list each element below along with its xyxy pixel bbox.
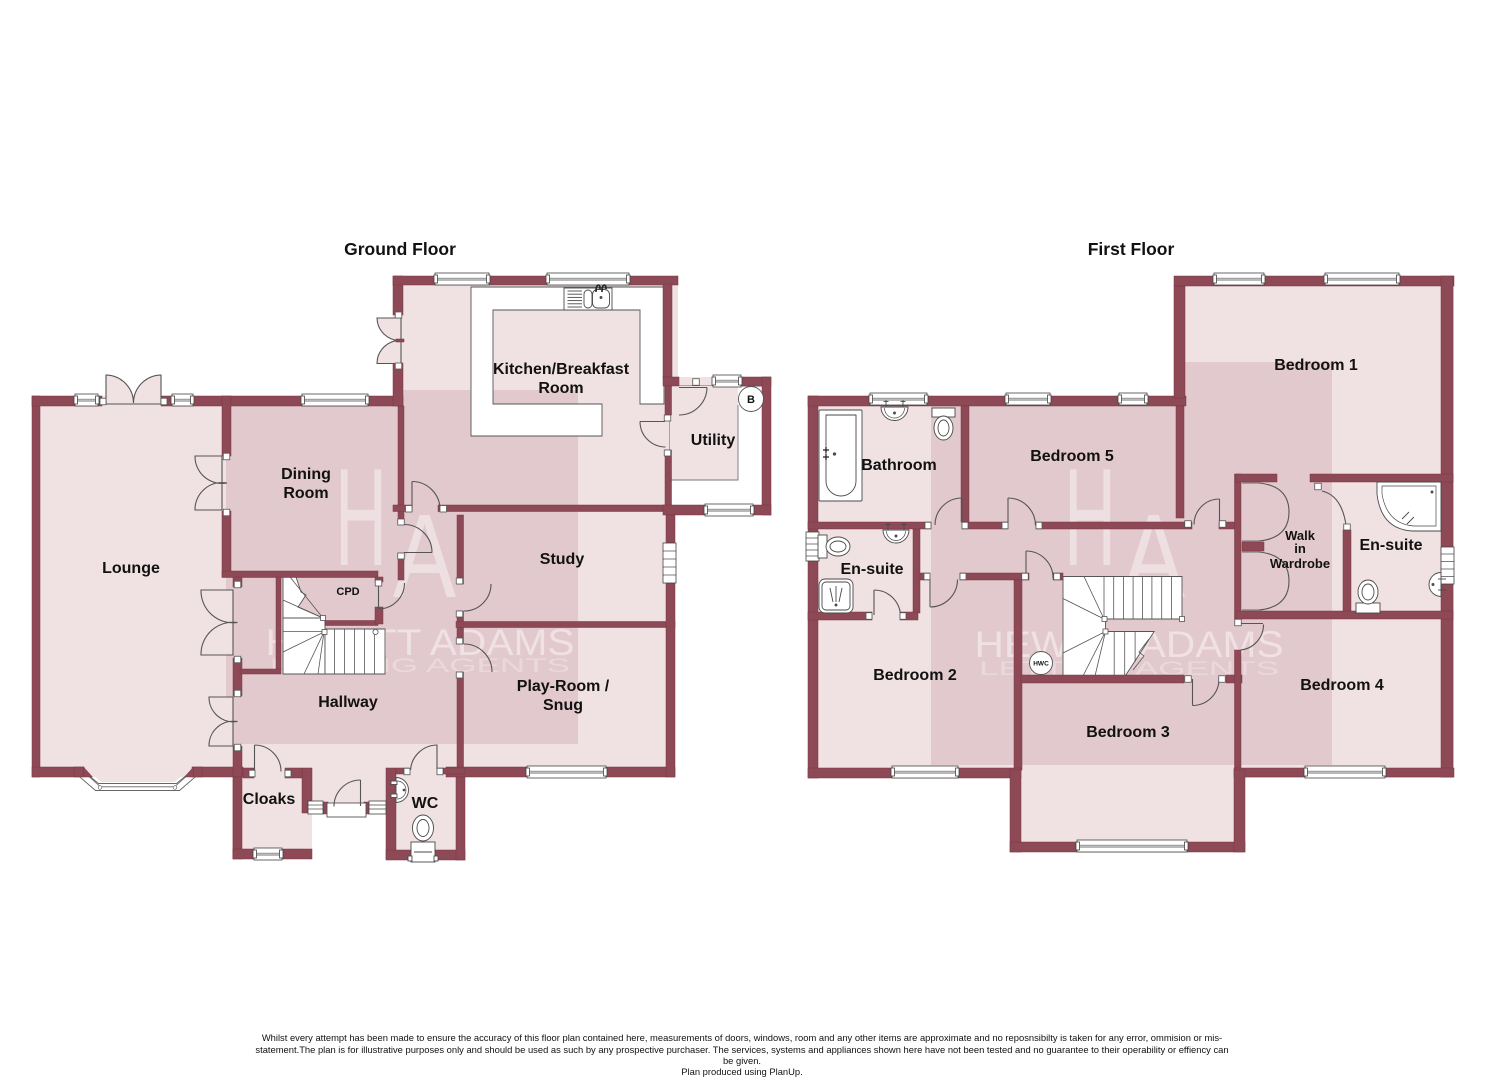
svg-text:Play-Room /: Play-Room / [517, 678, 610, 695]
svg-text:B: B [747, 394, 755, 406]
svg-text:Lounge: Lounge [102, 560, 160, 577]
svg-text:En-suite: En-suite [840, 561, 903, 578]
svg-text:Bathroom: Bathroom [861, 457, 937, 474]
svg-text:Bedroom 1: Bedroom 1 [1274, 357, 1358, 374]
svg-text:Snug: Snug [543, 697, 583, 714]
svg-text:En-suite: En-suite [1359, 537, 1422, 554]
svg-text:Room: Room [538, 380, 583, 397]
svg-text:Bedroom 2: Bedroom 2 [873, 667, 957, 684]
svg-text:Room: Room [283, 485, 328, 502]
svg-text:Wardrobe: Wardrobe [1270, 556, 1330, 571]
svg-text:be given.: be given. [723, 1055, 761, 1066]
svg-text:Bedroom 4: Bedroom 4 [1300, 677, 1384, 694]
svg-text:Hallway: Hallway [318, 694, 378, 711]
svg-text:Plan produced using PlanUp.: Plan produced using PlanUp. [681, 1066, 802, 1077]
svg-text:Utility: Utility [691, 432, 736, 449]
svg-text:Ground Floor: Ground Floor [344, 239, 456, 259]
svg-text:Bedroom 3: Bedroom 3 [1086, 724, 1170, 741]
svg-text:Cloaks: Cloaks [243, 791, 296, 808]
svg-text:HWC: HWC [1033, 661, 1049, 668]
svg-text:CPD: CPD [336, 586, 359, 598]
svg-text:First Floor: First Floor [1088, 239, 1175, 259]
svg-text:in: in [1294, 541, 1306, 556]
svg-text:Dining: Dining [281, 466, 331, 483]
svg-text:Kitchen/Breakfast: Kitchen/Breakfast [493, 361, 630, 378]
svg-text:statement.The plan is for illu: statement.The plan is for illustrative p… [255, 1044, 1228, 1055]
svg-text:Whilst every attempt has been: Whilst every attempt has been made to en… [262, 1032, 1222, 1043]
svg-text:Study: Study [540, 551, 585, 568]
svg-text:Bedroom 5: Bedroom 5 [1030, 448, 1114, 465]
svg-text:WC: WC [412, 795, 439, 812]
